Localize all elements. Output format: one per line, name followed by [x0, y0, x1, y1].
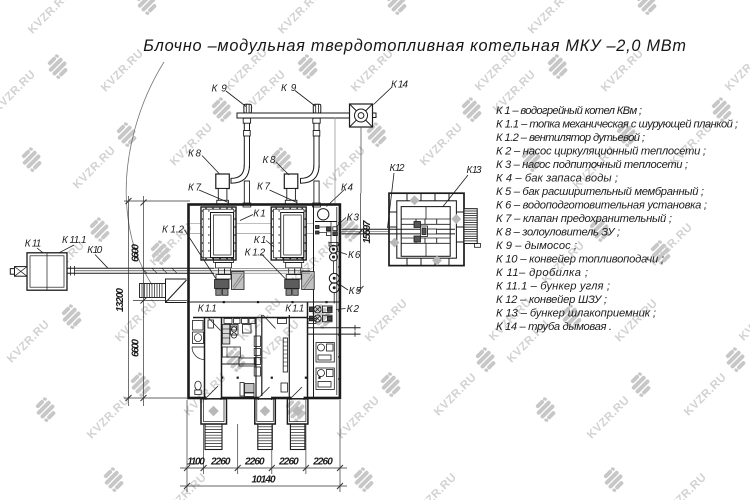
svg-text:К 7: К 7	[257, 182, 271, 193]
svg-text:Блочно –модульная твердотоплив: Блочно –модульная твердотопливная котель…	[143, 37, 686, 55]
svg-text:К 12 – конвейер ШЗУ ;: К 12 – конвейер ШЗУ ;	[496, 294, 607, 306]
svg-text:К 10 – конвейер топливоподач: К 10 – конвейер топливоподачи ;	[496, 254, 664, 266]
svg-text:К 11.1: К 11.1	[62, 235, 87, 246]
svg-text:К 11.1 – бункер угля ;: К 11.1 – бункер угля ;	[496, 281, 610, 293]
svg-text:К 1.1 – топка механическая с: К 1.1 – топка механическая с шурующей пл…	[496, 119, 738, 131]
svg-text:К 6: К 6	[348, 250, 361, 261]
svg-text:К 14: К 14	[391, 80, 409, 91]
svg-text:10140: 10140	[252, 475, 276, 486]
svg-text:К 12: К 12	[390, 163, 406, 174]
svg-text:К 6 – водоподготовительная у: К 6 – водоподготовительная установка ;	[496, 200, 707, 212]
svg-text:К 2: К 2	[347, 304, 360, 315]
svg-text:6600: 6600	[131, 244, 142, 262]
svg-text:2260: 2260	[210, 457, 231, 468]
svg-text:К 9: К 9	[212, 84, 228, 95]
svg-text:К 5: К 5	[349, 286, 362, 297]
svg-text:К 1.1: К 1.1	[198, 304, 217, 315]
svg-text:К 9 – дымосос ;: К 9 – дымосос ;	[496, 240, 577, 252]
svg-text:К 14 – труба дымовая .: К 14 – труба дымовая .	[496, 321, 612, 333]
svg-text:2260: 2260	[278, 457, 299, 468]
svg-text:К 1: К 1	[253, 209, 266, 220]
svg-text:2260: 2260	[312, 457, 333, 468]
svg-text:К 13: К 13	[467, 165, 483, 176]
svg-text:К 5 – бак расширительный мем: К 5 – бак расширительный мембранный ;	[496, 186, 704, 198]
svg-text:К 11: К 11	[25, 239, 42, 250]
svg-text:К 1.2: К 1.2	[162, 225, 185, 236]
svg-text:К 1.1: К 1.1	[285, 304, 304, 315]
svg-text:К 3: К 3	[347, 213, 360, 224]
svg-text:К 8: К 8	[188, 149, 202, 160]
svg-text:К 1: К 1	[254, 235, 267, 246]
svg-text:К 2 – насос циркуляционный т: К 2 – насос циркуляционный теплосети ;	[496, 146, 706, 158]
svg-text:К 8: К 8	[263, 155, 277, 166]
svg-text:К 10: К 10	[87, 245, 103, 256]
svg-text:К 1.2 – вентилятор дутьевой: К 1.2 – вентилятор дутьевой ;	[496, 132, 645, 144]
svg-text:К 7: К 7	[188, 183, 202, 194]
svg-text:К 11– дробилка ;: К 11– дробилка ;	[496, 267, 588, 279]
svg-text:К 4: К 4	[341, 183, 354, 194]
svg-text:15597: 15597	[362, 220, 373, 243]
svg-text:К 4 – бак запаса воды ;: К 4 – бак запаса воды ;	[496, 173, 618, 185]
svg-text:К 3 – насос подпиточный тепл: К 3 – насос подпиточный теплосети ;	[496, 159, 688, 171]
svg-text:К 7 – клапан предохранительн: К 7 – клапан предохранительный ;	[496, 213, 672, 225]
svg-text:К 1.2: К 1.2	[245, 248, 266, 259]
svg-text:6600: 6600	[131, 339, 142, 357]
svg-text:2260: 2260	[244, 457, 265, 468]
svg-text:1100: 1100	[187, 457, 205, 468]
svg-text:К 9: К 9	[281, 83, 297, 94]
svg-text:К 8 – золоуловитель ЗУ ;: К 8 – золоуловитель ЗУ ;	[496, 227, 620, 239]
svg-text:13200: 13200	[115, 288, 126, 312]
svg-text:К 13 – бункер шлакоприемник: К 13 – бункер шлакоприемник ;	[496, 308, 656, 320]
svg-text:К 1 – водогрейный котел КВм ;: К 1 – водогрейный котел КВм ;	[496, 105, 642, 117]
